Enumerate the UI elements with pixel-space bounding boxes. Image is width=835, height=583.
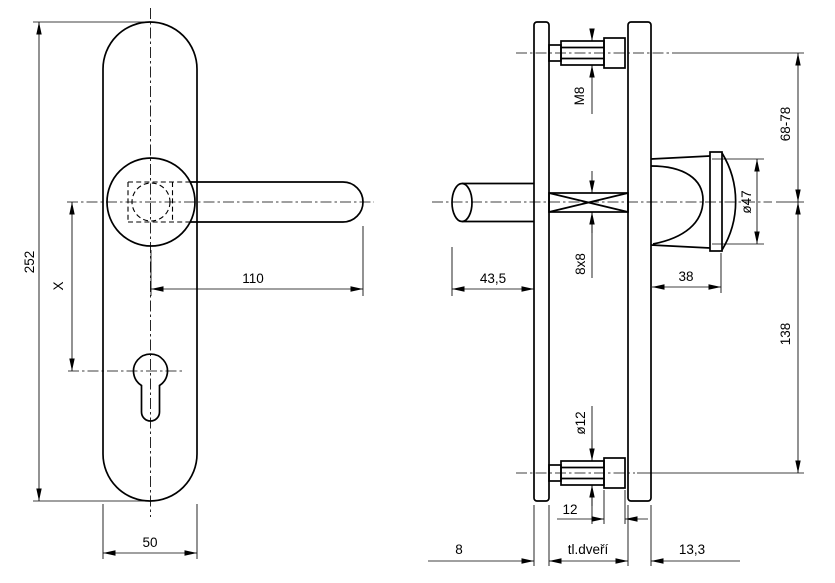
spindle bbox=[549, 193, 628, 212]
dim-knob-diameter-label: ø47 bbox=[739, 190, 754, 213]
dim-top-bolt-to-axis-label: 68-78 bbox=[778, 107, 793, 142]
dim-sleeve-length-label: 12 bbox=[562, 502, 577, 517]
dim-bottom-row: 8 tl.dveří 13,3 bbox=[428, 505, 740, 566]
dim-lever-projection-label: 43,5 bbox=[480, 271, 506, 286]
dim-door-thickness-label: tl.dveří bbox=[568, 542, 609, 557]
dim-plate-height: 252 bbox=[22, 22, 150, 501]
dim-sleeve-length: 12 bbox=[557, 490, 648, 524]
dim-inner-plate-thickness-label: 8 bbox=[455, 542, 463, 557]
side-view: 43,5 M8 8x8 ø47 38 bbox=[428, 22, 804, 566]
dim-thread: M8 bbox=[572, 30, 592, 114]
dim-thread-label: M8 bbox=[572, 87, 587, 106]
dim-x-offset-label: X bbox=[51, 281, 66, 290]
front-view: 252 X 110 50 bbox=[22, 8, 374, 559]
knob-top-edge bbox=[651, 156, 710, 159]
knob-bottom-edge bbox=[651, 245, 710, 248]
dim-x-offset: X bbox=[51, 202, 72, 371]
front-centerlines bbox=[67, 8, 374, 517]
knob-cap-arc bbox=[722, 153, 736, 250]
dim-knob-diameter: ø47 bbox=[712, 159, 764, 244]
dim-spindle: 8x8 bbox=[573, 171, 592, 278]
drawing-canvas: 252 X 110 50 bbox=[0, 0, 835, 583]
backplate-outline bbox=[103, 22, 197, 501]
dim-lever-length-label: 110 bbox=[242, 271, 264, 286]
dim-knob-length: 38 bbox=[652, 253, 721, 293]
knob-face-curve bbox=[651, 166, 703, 244]
dim-lever-length: 110 bbox=[151, 226, 363, 296]
lever-end-cap bbox=[452, 184, 472, 222]
knob-rim bbox=[710, 152, 722, 251]
dim-spindle-label: 8x8 bbox=[573, 253, 588, 275]
lever-side bbox=[452, 184, 534, 222]
dim-bottom-bolt-diameter-label: ø12 bbox=[573, 411, 588, 434]
outer-plate-outline bbox=[628, 22, 651, 501]
door-handle-technical-drawing: 252 X 110 50 bbox=[0, 0, 835, 583]
dim-plate-height-label: 252 bbox=[22, 251, 37, 274]
inner-plate-outline bbox=[534, 22, 549, 501]
dim-plate-width: 50 bbox=[103, 504, 197, 559]
dim-plate-width-label: 50 bbox=[142, 535, 157, 550]
dim-outer-plate-thickness-label: 13,3 bbox=[679, 542, 705, 557]
dim-knob-length-label: 38 bbox=[678, 269, 693, 284]
dim-axis-to-bottom-bolt-label: 138 bbox=[778, 323, 793, 346]
dim-top-bolt-to-axis: 68-78 bbox=[672, 53, 804, 202]
dim-lever-projection: 43,5 bbox=[452, 247, 534, 296]
knob bbox=[651, 152, 736, 251]
